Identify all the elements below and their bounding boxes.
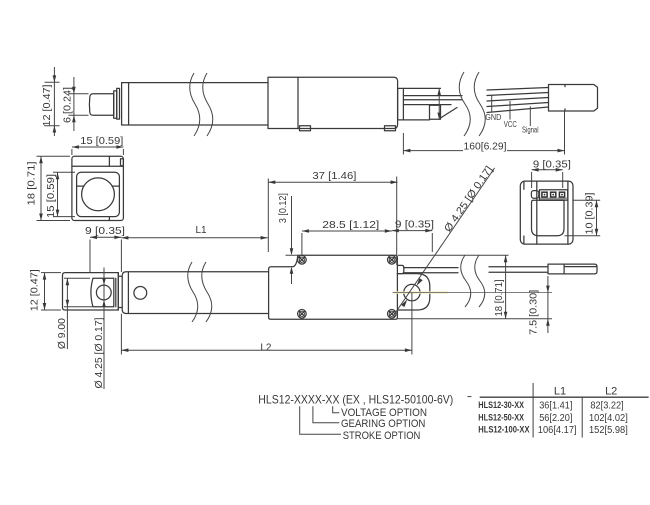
- svg-text:36[1.41]: 36[1.41]: [539, 401, 572, 412]
- svg-text:160[6.29]: 160[6.29]: [464, 140, 507, 152]
- svg-text:9 [0.35]: 9 [0.35]: [85, 226, 125, 237]
- svg-text:28.5 [1.12]: 28.5 [1.12]: [322, 220, 379, 231]
- svg-text:9 [0.35]: 9 [0.35]: [533, 159, 571, 170]
- svg-text:18 [0.71]: 18 [0.71]: [27, 161, 38, 205]
- svg-text:HLS12-XXXX-XX (EX , HLS12-5010: HLS12-XXXX-XX (EX , HLS12-50100-6V): [258, 393, 453, 407]
- svg-text:15 [0.59]: 15 [0.59]: [80, 136, 123, 147]
- svg-text:9 [0.35]: 9 [0.35]: [395, 220, 434, 231]
- svg-text:HLS12-100-XX: HLS12-100-XX: [478, 425, 530, 435]
- svg-text:STROKE OPTION: STROKE OPTION: [343, 430, 421, 442]
- svg-text:Ø 9.00: Ø 9.00: [57, 318, 68, 349]
- svg-text:102[4.02]: 102[4.02]: [589, 413, 628, 424]
- svg-text:12 [0.47]: 12 [0.47]: [42, 84, 53, 126]
- svg-text:L2: L2: [260, 343, 272, 354]
- svg-text:HLS12-30-XX: HLS12-30-XX: [478, 400, 524, 410]
- svg-text:18 [0.71]: 18 [0.71]: [494, 279, 505, 316]
- svg-text:GEARING OPTION: GEARING OPTION: [341, 418, 425, 430]
- svg-text:L1: L1: [195, 225, 207, 236]
- svg-text:GND: GND: [485, 113, 501, 122]
- svg-text:37 [1.46]: 37 [1.46]: [312, 171, 356, 182]
- svg-text:82[3.22]: 82[3.22]: [590, 401, 624, 412]
- svg-text:L1: L1: [554, 385, 566, 397]
- svg-text:Ø 4.25 [Ø 0.17]: Ø 4.25 [Ø 0.17]: [94, 317, 105, 388]
- svg-text:152[5.98]: 152[5.98]: [589, 425, 628, 436]
- svg-text:Signal: Signal: [522, 126, 539, 135]
- svg-text:3 [0.12]: 3 [0.12]: [278, 193, 289, 223]
- svg-text:15 [0.59]: 15 [0.59]: [46, 174, 57, 218]
- svg-text:6 [0.24]: 6 [0.24]: [62, 87, 73, 123]
- svg-text:10 [0.39]: 10 [0.39]: [585, 192, 596, 234]
- svg-text:7.5 [0.30]: 7.5 [0.30]: [529, 290, 540, 335]
- svg-text:12 [0.47]: 12 [0.47]: [30, 269, 41, 311]
- svg-text:L2: L2: [605, 385, 617, 397]
- svg-text:VCC: VCC: [504, 120, 517, 129]
- svg-text:106[4.17]: 106[4.17]: [538, 425, 577, 436]
- svg-text:56[2.20]: 56[2.20]: [539, 413, 572, 424]
- svg-text:HLS12-50-XX: HLS12-50-XX: [478, 413, 524, 423]
